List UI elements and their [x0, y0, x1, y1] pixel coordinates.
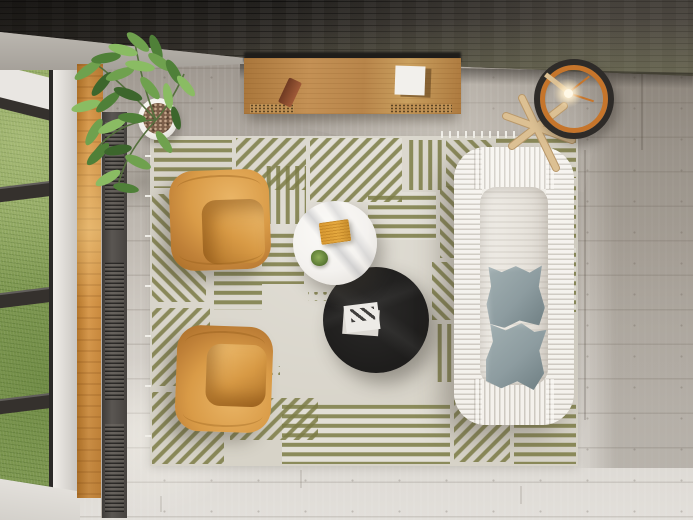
- armchair-bottom: [174, 324, 274, 433]
- lamp-bulb: [564, 89, 573, 98]
- plant-leaves: [70, 29, 198, 195]
- floor-plank-seam: [300, 470, 302, 488]
- magazine-cover-stripes: [350, 306, 375, 322]
- living-room-top-view: [0, 0, 693, 520]
- floor-plank-seam: [520, 486, 522, 504]
- floor-plank-seam: [584, 150, 586, 420]
- radiator-grille: [105, 424, 124, 512]
- orange-tray: [319, 219, 352, 245]
- sofa-cushion-upper: [484, 263, 546, 329]
- sofa-front: [474, 379, 554, 425]
- floor-lamp: [534, 59, 614, 139]
- brown-book: [278, 77, 302, 107]
- sofa-cushion-lower: [483, 321, 546, 390]
- magazine: [343, 302, 380, 333]
- sideboard: [244, 58, 461, 114]
- sideboard-vent: [390, 104, 452, 113]
- succulent-plant: [311, 250, 328, 266]
- armchair-seat-cushion: [205, 343, 267, 407]
- coffee-table-white: [293, 201, 377, 285]
- white-book: [395, 65, 426, 95]
- radiator-grille: [105, 262, 124, 400]
- potted-plant: [62, 22, 212, 222]
